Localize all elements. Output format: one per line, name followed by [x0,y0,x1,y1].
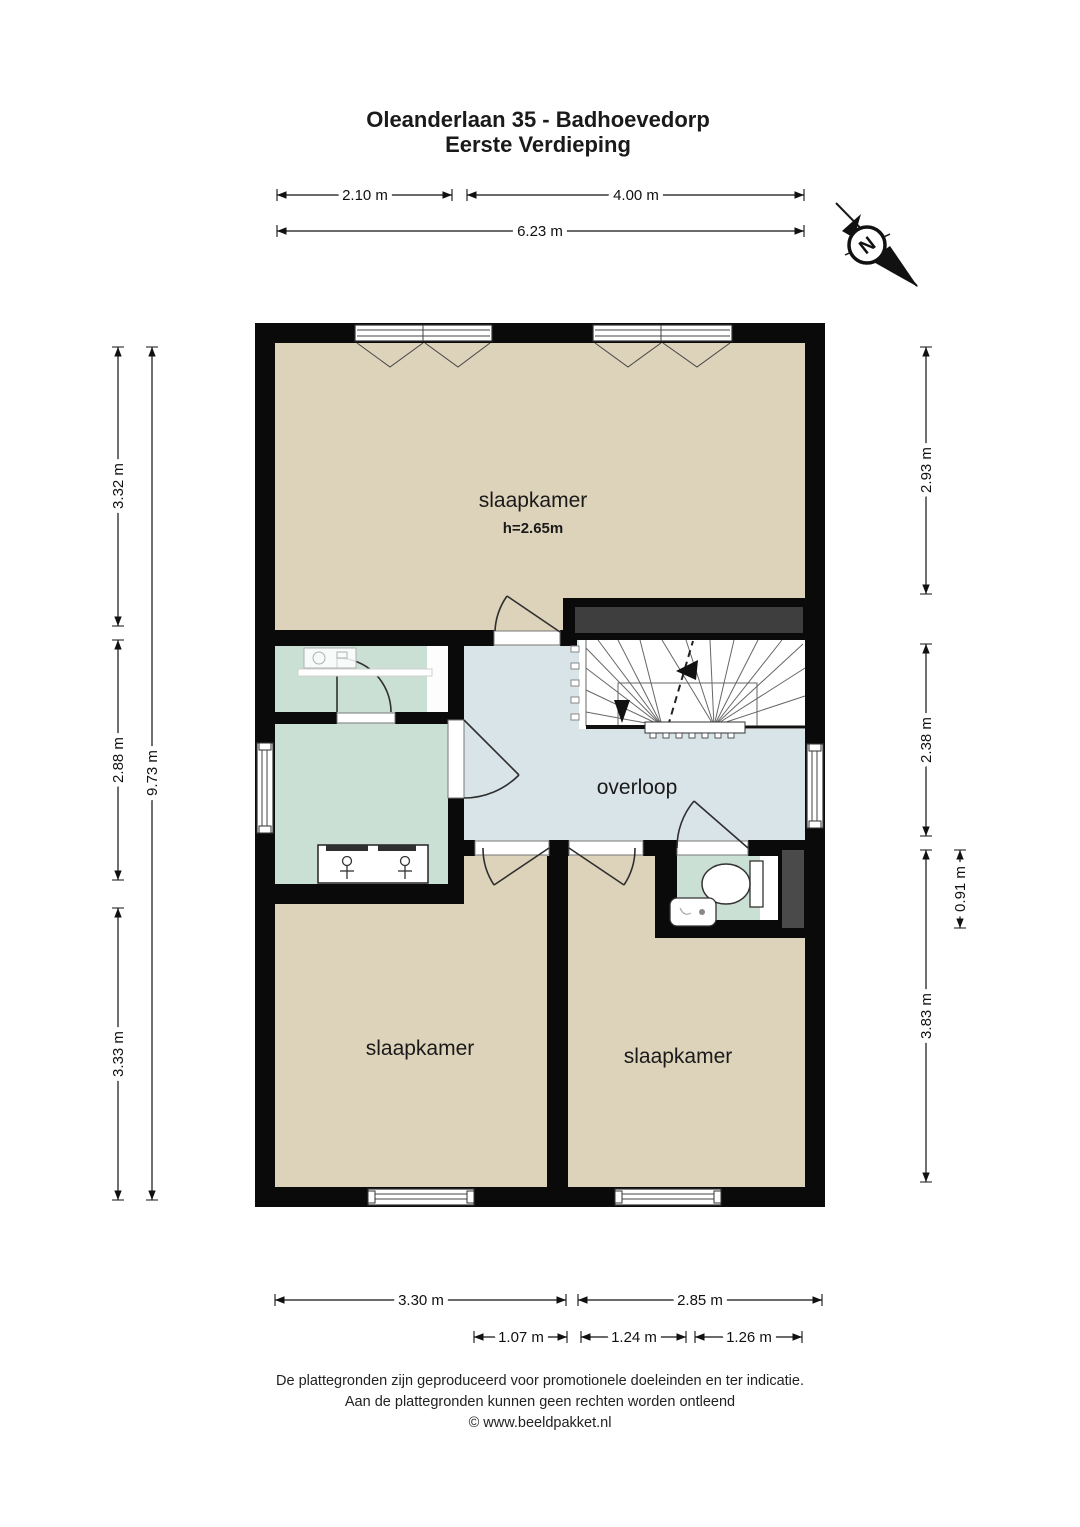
dim-bottom-2: 2.85 m [677,1292,723,1309]
floorplan-page: Oleanderlaan 35 - Badhoevedorp Eerste Ve… [0,0,1080,1527]
dim-bottom-sub-3: 1.26 m [726,1329,772,1346]
window-bottom-1 [368,1189,474,1205]
compass-north-icon: N [836,203,918,287]
dim-left-3: 3.33 m [110,1031,127,1077]
dim-top-1: 2.10 m [342,187,388,204]
title-line-2: Eerste Verdieping [445,132,631,157]
dim-bottom-sub-1: 1.07 m [498,1329,544,1346]
dim-left-2: 2.88 m [110,737,127,783]
dimensions-left: 3.32 m 2.88 m 3.33 m 9.73 m [110,347,161,1200]
stair-header-accent [575,607,803,633]
wall-landing-bottom-1 [448,840,475,856]
label-bedroom-right: slaapkamer [624,1045,733,1068]
staircase [571,640,805,738]
wall-outer-bottom [255,1187,825,1207]
dimensions-bottom: 3.30 m 2.85 m 1.07 m 1.24 m 1.26 m [275,1292,822,1346]
footer-line-2: Aan de plattegronden kunnen geen rechten… [345,1394,735,1410]
dim-left-total: 9.73 m [144,750,161,796]
wall-bath-right-upper [448,630,464,720]
window-bottom-2 [615,1189,721,1205]
wall-landing-bottom-2 [549,840,569,856]
dim-bottom-1: 3.30 m [398,1292,444,1309]
dim-right-2: 2.38 m [918,717,935,763]
wall-between-bedrooms [547,856,568,1187]
dimensions-top: 2.10 m 4.00 m 6.23 m [277,187,804,240]
room-bedroom-top [265,333,815,633]
vanity-double-sink [318,845,428,883]
footer-disclaimer: De plattegronden zijn geproduceerd voor … [276,1373,804,1431]
label-bedroom-top-height: h=2.65m [503,520,563,537]
shaft-accent [782,850,804,928]
dimensions-right: 2.93 m 2.38 m 0.91 m 3.83 m [918,347,969,1182]
floorplan-canvas: Oleanderlaan 35 - Badhoevedorp Eerste Ve… [0,0,1080,1527]
wall-outer-top [255,323,825,343]
footer-line-3: © www.beeldpakket.nl [469,1415,612,1431]
dim-top-total: 6.23 m [517,223,563,240]
dim-right-4: 3.83 m [918,993,935,1039]
wall-bath-bottom [255,884,464,904]
label-bedroom-left: slaapkamer [366,1037,475,1060]
label-landing: overloop [597,776,678,799]
window-left [257,743,273,833]
wall-landing-bottom-3 [643,840,677,856]
dim-left-1: 3.32 m [110,463,127,509]
stair-railing [645,722,745,733]
wall-laundry-bath-1 [255,712,337,724]
room-fills [265,333,815,1195]
dim-right-3: 0.91 m [952,866,969,912]
window-right [807,744,823,828]
hand-basin-icon [670,898,716,926]
room-laundry [265,640,455,720]
dim-bottom-sub-2: 1.24 m [611,1329,657,1346]
footer-line-1: De plattegronden zijn geproduceerd voor … [276,1373,804,1389]
title-line-1: Oleanderlaan 35 - Badhoevedorp [366,107,710,132]
page-title: Oleanderlaan 35 - Badhoevedorp Eerste Ve… [366,107,710,157]
dim-right-1: 2.93 m [918,447,935,493]
label-bedroom-top: slaapkamer [479,489,588,512]
dim-top-2: 4.00 m [613,187,659,204]
